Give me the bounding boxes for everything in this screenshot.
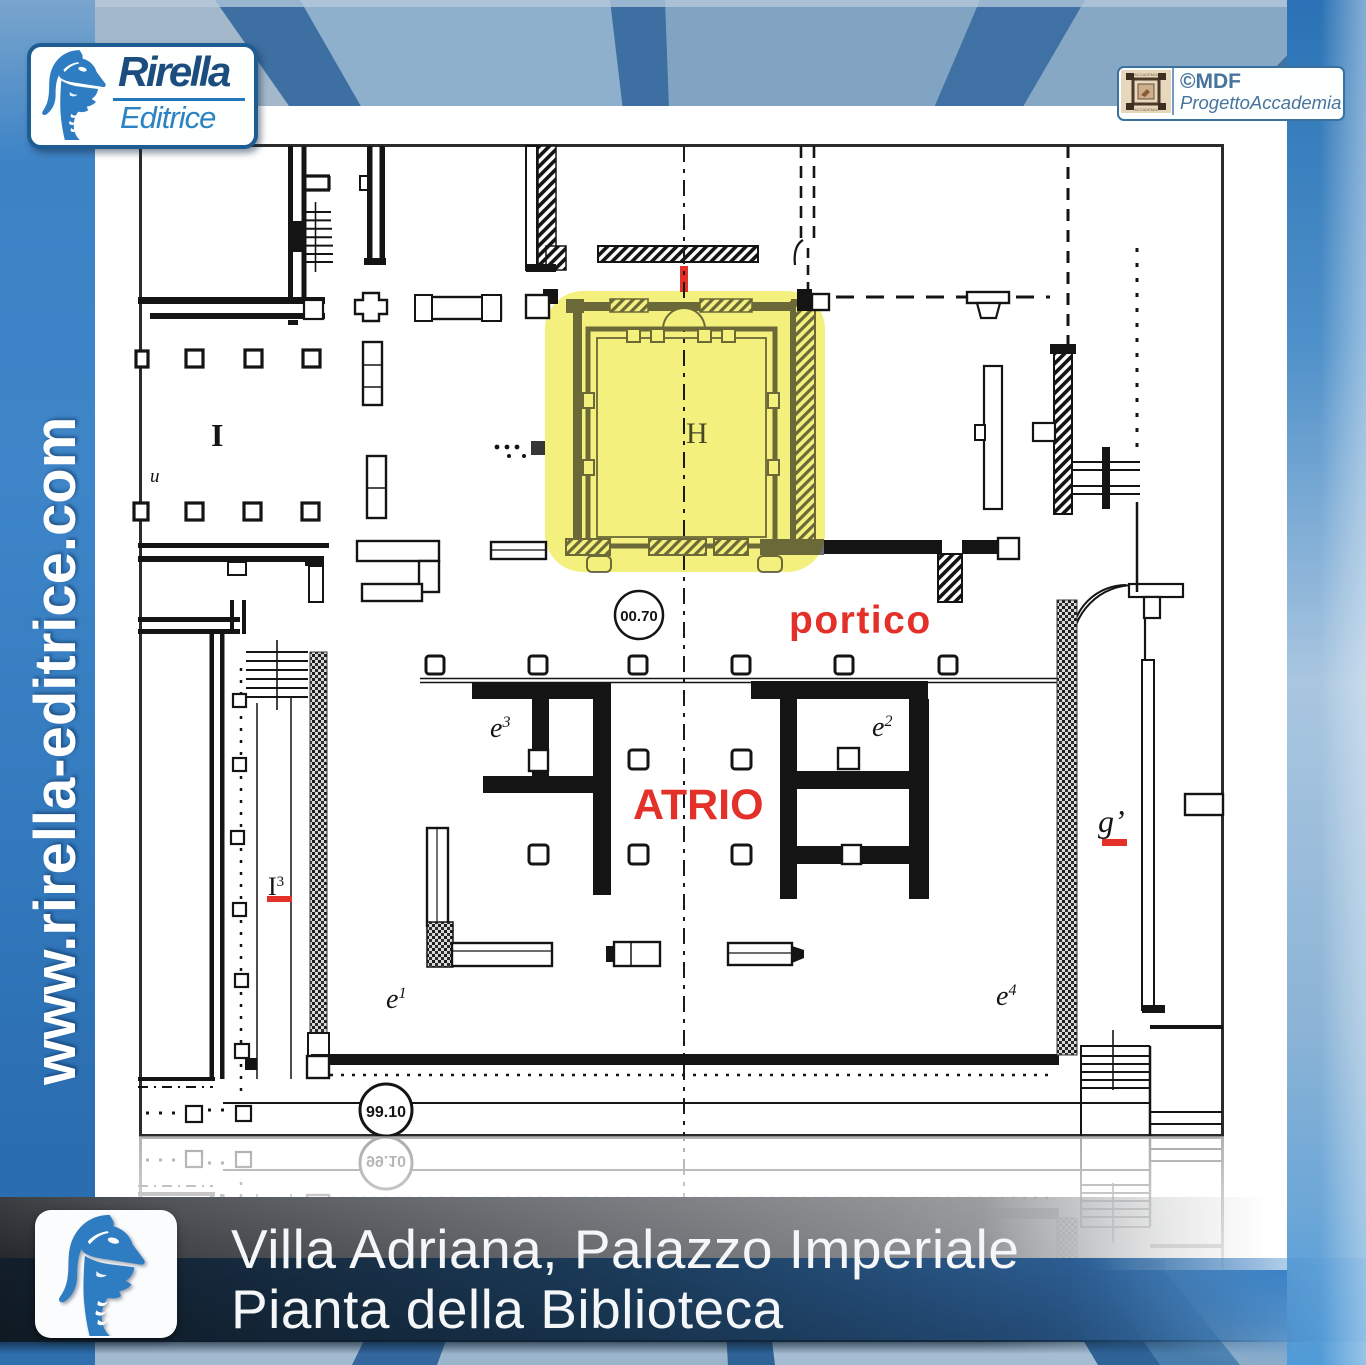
svg-text:99.10: 99.10	[366, 1104, 406, 1121]
svg-text:00.70: 00.70	[620, 608, 658, 625]
svg-text:portico: portico	[789, 599, 932, 642]
svg-text:g’: g’	[1098, 803, 1125, 839]
svg-text:ACCADEMIA: ACCADEMIA	[1134, 72, 1158, 77]
svg-text:ACCADEMIA: ACCADEMIA	[1134, 107, 1158, 112]
svg-text:u: u	[150, 466, 160, 487]
svg-text:ATRIO: ATRIO	[633, 781, 764, 829]
svg-text:e1: e1	[386, 984, 406, 1015]
svg-text:e3: e3	[490, 713, 510, 744]
svg-text:I: I	[211, 417, 223, 453]
svg-text:e4: e4	[996, 981, 1016, 1012]
svg-text:e2: e2	[872, 712, 892, 743]
